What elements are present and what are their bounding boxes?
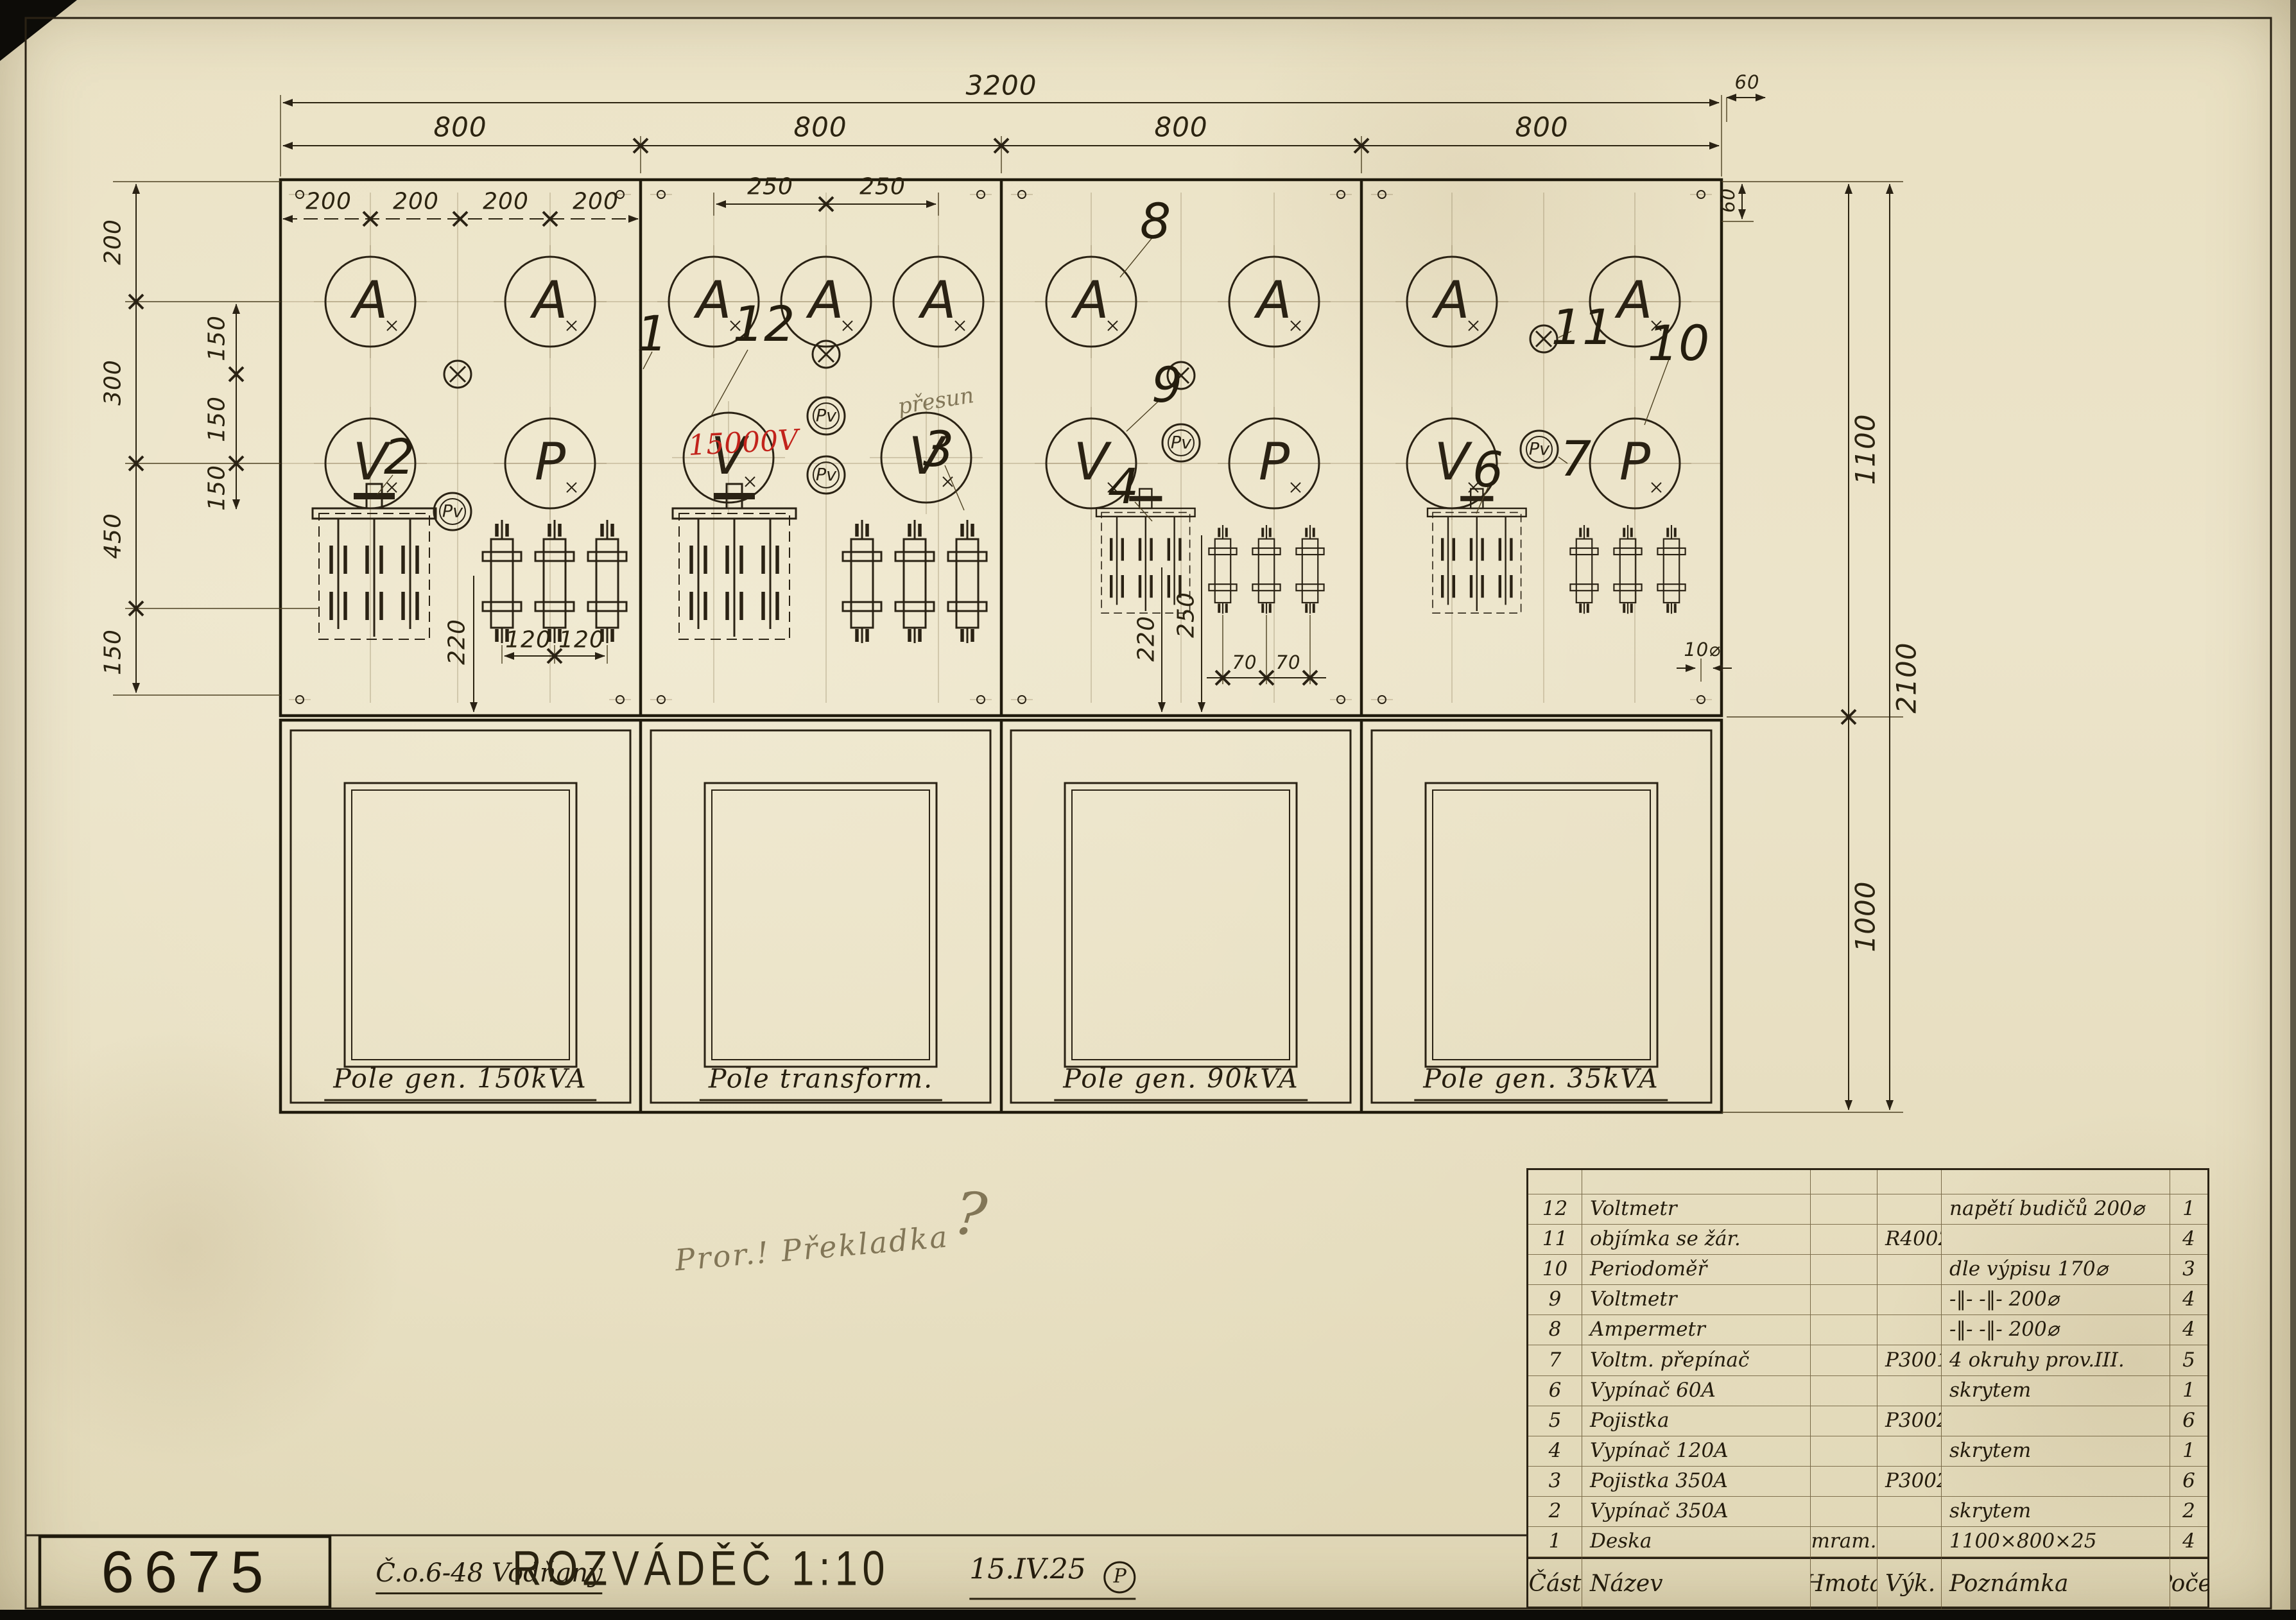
voltmeter-switch-symbol: Pv	[1529, 441, 1549, 458]
panel-label-gen35: Pole gen. 35kVA	[1414, 1064, 1668, 1101]
dim-p1-120a: 120	[505, 627, 551, 653]
ammeter-symbol: A	[809, 275, 844, 326]
part-num: 9	[1528, 1285, 1582, 1315]
dim-p1-200c: 200	[483, 189, 529, 215]
callout-9: 9	[1152, 361, 1182, 409]
dim-bay-3: 800	[1154, 112, 1207, 143]
part-qty: 4	[2170, 1225, 2207, 1255]
part-material	[1811, 1497, 1877, 1527]
part-num: 8	[1528, 1315, 1582, 1345]
date-text: 15.IV.25	[969, 1553, 1085, 1586]
part-dwg: P30012	[1877, 1345, 1942, 1375]
ammeter-symbol: A	[1257, 275, 1292, 326]
dim-bay-4: 800	[1515, 112, 1568, 143]
part-dwg: P30022	[1877, 1406, 1942, 1436]
callout-4: 4	[1108, 462, 1139, 511]
part-name: Vypínač 60A	[1582, 1376, 1811, 1406]
callout-10: 10	[1648, 319, 1710, 368]
ammeter-symbol: A	[1074, 275, 1109, 326]
voltmeter-switch-symbol: Pv	[816, 408, 836, 425]
part-qty: 3	[2170, 1255, 2207, 1285]
part-dwg	[1877, 1527, 1942, 1557]
table-header-name: Název	[1582, 1557, 1811, 1609]
part-note: -‖- -‖- 200⌀	[1942, 1285, 2170, 1315]
voltmeter-switch-symbol: Pv	[442, 503, 463, 521]
part-note	[1942, 1467, 2170, 1497]
panel-label-transform: Pole transform.	[700, 1064, 942, 1101]
callout-1: 1	[637, 309, 668, 358]
panel-label-gen150: Pole gen. 150kVA	[324, 1064, 596, 1101]
voltmeter-switch-symbol: Pv	[816, 467, 836, 484]
callout-3: 3	[923, 425, 954, 474]
part-material	[1811, 1406, 1877, 1436]
dim-right-60a: 60	[1735, 71, 1760, 93]
part-num: 4	[1528, 1436, 1582, 1467]
ammeter-symbol: A	[696, 275, 732, 326]
table-header-note: Poznámka	[1942, 1557, 2170, 1609]
part-qty: 4	[2170, 1315, 2207, 1345]
dim-p3-250: 250	[1173, 592, 1200, 638]
part-note: skrytem	[1942, 1376, 2170, 1406]
part-name: Vypínač 120A	[1582, 1436, 1811, 1467]
part-material	[1811, 1315, 1877, 1345]
part-note: skrytem	[1942, 1436, 2170, 1467]
part-note: -‖- -‖- 200⌀	[1942, 1315, 2170, 1345]
part-material	[1811, 1225, 1877, 1255]
table-header-num: Část	[1528, 1557, 1582, 1609]
part-qty: 6	[2170, 1467, 2207, 1497]
dim-left-450: 450	[100, 513, 126, 559]
part-num: 6	[1528, 1376, 1582, 1406]
callout-11: 11	[1551, 303, 1614, 352]
part-qty: 6	[2170, 1406, 2207, 1436]
dim-bay-2: 800	[793, 112, 847, 143]
part-note: skrytem	[1942, 1497, 2170, 1527]
part-material	[1811, 1345, 1877, 1375]
dim-p1-150b: 150	[204, 396, 230, 442]
dim-p1-200d: 200	[573, 189, 619, 215]
callout-6: 6	[1472, 445, 1503, 494]
part-dwg: P30025	[1877, 1467, 1942, 1497]
period-meter-symbol: P	[535, 436, 565, 488]
dim-p1-150c: 150	[204, 465, 230, 511]
part-material	[1811, 1436, 1877, 1467]
ammeter-symbol: A	[353, 275, 388, 326]
ammeter-symbol: A	[533, 275, 568, 326]
dim-p1-200a: 200	[306, 189, 352, 215]
blueprint-scan: 3200 800 800 800 800 200 200 200 200 250…	[0, 0, 2296, 1620]
part-dwg	[1877, 1497, 1942, 1527]
period-meter-symbol: P	[1259, 436, 1290, 488]
approval-stamp: P	[1104, 1562, 1136, 1594]
dim-p1-200b: 200	[393, 189, 439, 215]
part-num: 3	[1528, 1467, 1582, 1497]
page-title: ROZVÁDĚČ 1:10	[512, 1541, 890, 1597]
part-note	[1942, 1225, 2170, 1255]
dim-right-1000: 1000	[1850, 881, 1881, 952]
dim-right-1100: 1100	[1850, 414, 1881, 485]
dim-p1-220: 220	[444, 619, 470, 665]
part-material	[1811, 1255, 1877, 1285]
part-dwg	[1877, 1194, 1942, 1225]
part-name: Periodoměř	[1582, 1255, 1811, 1285]
part-num: 2	[1528, 1497, 1582, 1527]
part-note: 4 okruhy prov.III.	[1942, 1345, 2170, 1375]
dim-p1-150a: 150	[204, 315, 230, 361]
part-material	[1811, 1376, 1877, 1406]
part-note: napětí budičů 200⌀	[1942, 1194, 2170, 1225]
dim-right-60b: 60	[1717, 188, 1739, 213]
part-material	[1811, 1467, 1877, 1497]
part-name: Ampermetr	[1582, 1315, 1811, 1345]
part-qty: 5	[2170, 1345, 2207, 1375]
part-name: Deska	[1582, 1527, 1811, 1557]
panel-label-gen90: Pole gen. 90kVA	[1054, 1064, 1308, 1101]
part-qty: 1	[2170, 1436, 2207, 1467]
part-num: 7	[1528, 1345, 1582, 1375]
voltmeter-switch-symbol: Pv	[1171, 435, 1191, 452]
dim-hole-10: 10⌀	[1684, 639, 1720, 660]
part-name: Voltmetr	[1582, 1194, 1811, 1225]
part-material	[1811, 1285, 1877, 1315]
part-note: 1100×800×25	[1942, 1527, 2170, 1557]
part-qty: 4	[2170, 1285, 2207, 1315]
ammeter-symbol: A	[1435, 275, 1470, 326]
part-num: 11	[1528, 1225, 1582, 1255]
dim-left-150: 150	[100, 629, 126, 675]
part-qty: 2	[2170, 1497, 2207, 1527]
part-dwg	[1877, 1376, 1942, 1406]
dim-p1-120b: 120	[558, 627, 605, 653]
dim-left-300: 300	[100, 359, 126, 406]
callout-2: 2	[384, 433, 415, 481]
table-header-qty: Počet	[2170, 1557, 2207, 1609]
part-name: objímka se žár.	[1582, 1225, 1811, 1255]
part-dwg	[1877, 1436, 1942, 1467]
part-name: Voltmetr	[1582, 1285, 1811, 1315]
part-material	[1811, 1194, 1877, 1225]
dim-bay-1: 800	[433, 112, 487, 143]
ammeter-symbol: A	[921, 275, 956, 326]
dim-total-width: 3200	[966, 70, 1037, 101]
dim-p2-250a: 250	[747, 174, 793, 200]
part-dwg	[1877, 1255, 1942, 1285]
part-qty: 1	[2170, 1194, 2207, 1225]
callout-12: 12	[733, 300, 795, 349]
part-num: 1	[1528, 1527, 1582, 1557]
table-header-material: Hmota	[1811, 1557, 1877, 1609]
part-name: Voltm. přepínač	[1582, 1345, 1811, 1375]
part-note	[1942, 1406, 2170, 1436]
part-num: 5	[1528, 1406, 1582, 1436]
part-dwg	[1877, 1315, 1942, 1345]
voltmeter-symbol: V	[353, 436, 388, 488]
voltmeter-symbol: V	[1074, 436, 1109, 488]
part-qty: 1	[2170, 1376, 2207, 1406]
voltmeter-symbol: V	[1435, 436, 1470, 488]
part-name: Pojistka 350A	[1582, 1467, 1811, 1497]
callout-7: 7	[1560, 435, 1591, 483]
drawing-date: 15.IV.25 P	[969, 1553, 1135, 1600]
dim-p3-70b: 70	[1276, 651, 1301, 673]
dim-right-2100: 2100	[1891, 642, 1922, 714]
drawing-number: 6675	[101, 1539, 274, 1607]
part-name: Vypínač 350A	[1582, 1497, 1811, 1527]
parts-list-table: 12 Voltmetr napětí budičů 200⌀ 1 11 objí…	[1526, 1168, 2209, 1608]
part-name: Pojistka	[1582, 1406, 1811, 1436]
period-meter-symbol: P	[1619, 436, 1650, 488]
part-qty: 4	[2170, 1527, 2207, 1557]
part-num: 10	[1528, 1255, 1582, 1285]
part-dwg	[1877, 1285, 1942, 1315]
part-material: mram.	[1811, 1527, 1877, 1557]
part-note: dle výpisu 170⌀	[1942, 1255, 2170, 1285]
dim-p3-220: 220	[1134, 616, 1160, 662]
table-header-dwg: Výk.	[1877, 1557, 1942, 1609]
callout-8: 8	[1140, 197, 1171, 246]
part-num: 12	[1528, 1194, 1582, 1225]
dim-p2-250b: 250	[859, 174, 906, 200]
dim-left-200: 200	[100, 219, 126, 265]
dim-p3-70a: 70	[1232, 651, 1257, 673]
red-voltage-note: 15000V	[687, 424, 799, 462]
part-dwg: R40023	[1877, 1225, 1942, 1255]
